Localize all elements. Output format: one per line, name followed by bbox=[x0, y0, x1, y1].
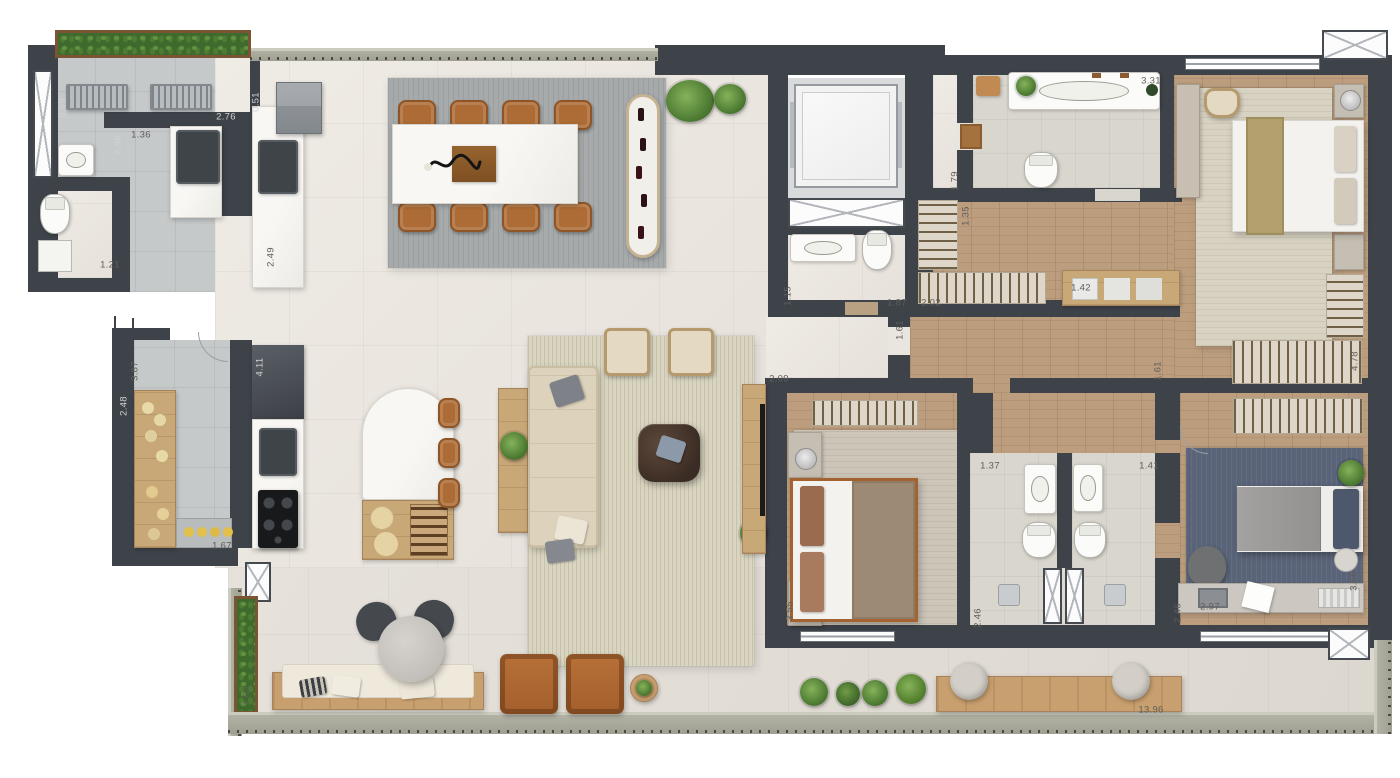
decor-squiggle bbox=[438, 146, 482, 182]
wall bbox=[112, 548, 238, 566]
wall bbox=[957, 393, 993, 453]
wall bbox=[222, 128, 252, 216]
closet-rack-icon bbox=[1232, 340, 1362, 384]
refrigerator-icon bbox=[276, 82, 322, 134]
folded-clothes-icon bbox=[1072, 278, 1098, 300]
floor-plan: 0.692.761.360.512.062.491.213.872.484.11… bbox=[0, 0, 1400, 778]
door-mat-icon bbox=[960, 124, 982, 149]
bath-accessory bbox=[1146, 84, 1158, 96]
pillow bbox=[545, 538, 576, 564]
lounge-chair-icon bbox=[500, 654, 558, 714]
entry-corridor-floor bbox=[933, 75, 957, 188]
lounge-chair-icon bbox=[566, 654, 624, 714]
plant-icon bbox=[666, 80, 714, 122]
dining-chair-icon bbox=[554, 202, 592, 232]
hallway-floor-south bbox=[973, 393, 1180, 455]
console-table-icon bbox=[498, 388, 528, 533]
table-lamp-icon bbox=[1340, 90, 1361, 111]
washer-icon bbox=[176, 130, 220, 184]
round-table-icon bbox=[378, 616, 444, 682]
plant-icon bbox=[836, 682, 860, 706]
vanity-sink-icon bbox=[790, 234, 856, 262]
terrace-railing bbox=[228, 712, 1392, 734]
pantry-jars bbox=[142, 402, 154, 414]
vanity-sink-icon bbox=[1073, 464, 1103, 512]
plant-icon bbox=[1338, 460, 1364, 486]
wall bbox=[112, 177, 130, 292]
wine-bottles bbox=[638, 108, 644, 121]
bed-blanket bbox=[852, 481, 915, 619]
cooktop-icon bbox=[258, 490, 298, 548]
laundry-sink-icon bbox=[58, 144, 94, 176]
balcony-edge bbox=[250, 48, 658, 61]
living-nook-floor bbox=[765, 317, 888, 378]
dining-chair-icon bbox=[502, 202, 540, 232]
wall bbox=[1368, 55, 1392, 645]
plant-icon bbox=[862, 680, 888, 706]
shower-icon bbox=[38, 240, 72, 272]
toilet-icon bbox=[1074, 522, 1106, 558]
vanity-sink-icon bbox=[1024, 464, 1056, 514]
closet-rack-icon bbox=[918, 272, 1046, 304]
wall bbox=[957, 73, 973, 123]
armchair-icon bbox=[604, 328, 650, 376]
pillow bbox=[800, 552, 824, 612]
door-opening bbox=[845, 302, 878, 315]
pillow bbox=[1334, 126, 1356, 172]
tall-cabinet bbox=[252, 345, 304, 419]
pantry-shelf-icon bbox=[134, 390, 176, 548]
wall bbox=[1155, 453, 1180, 523]
nightstand-icon bbox=[1334, 234, 1364, 270]
plant-icon bbox=[500, 432, 528, 460]
shaft-hatch-icon bbox=[1328, 628, 1370, 660]
toilet-icon bbox=[40, 194, 70, 234]
pillow bbox=[1334, 178, 1356, 224]
closet-rack-icon bbox=[1326, 274, 1364, 338]
plant-icon bbox=[714, 84, 746, 114]
side-table-icon bbox=[1334, 548, 1358, 572]
faucet-icon bbox=[1092, 73, 1101, 78]
door-opening bbox=[888, 327, 910, 355]
door-opening bbox=[1095, 189, 1140, 201]
plant-icon bbox=[896, 674, 926, 704]
wall bbox=[655, 45, 945, 75]
dresser bbox=[1176, 84, 1200, 198]
wall bbox=[957, 150, 973, 188]
wall bbox=[768, 75, 788, 228]
tv-icon bbox=[760, 404, 765, 516]
wall bbox=[765, 378, 973, 393]
toilet-icon bbox=[1022, 522, 1056, 558]
closet-rack-icon bbox=[918, 200, 958, 270]
wall bbox=[765, 378, 787, 648]
window-icon bbox=[33, 70, 53, 178]
planter-icon bbox=[234, 596, 258, 714]
table-runner bbox=[452, 146, 496, 182]
closet-rack-icon bbox=[812, 400, 918, 426]
armchair-icon bbox=[668, 328, 714, 376]
bar-stool-icon bbox=[370, 506, 394, 530]
table-lamp-icon bbox=[795, 448, 817, 470]
window-icon bbox=[1200, 631, 1330, 642]
stool-icon bbox=[976, 76, 1000, 96]
radiator-icon bbox=[1318, 588, 1360, 608]
wall bbox=[1057, 453, 1072, 568]
bar-stool-icon bbox=[438, 398, 460, 428]
section-cut-icon bbox=[114, 316, 126, 330]
drying-rack-icon bbox=[150, 84, 212, 110]
section-cut-icon bbox=[132, 318, 142, 330]
wall bbox=[930, 188, 1182, 202]
bed-blanket bbox=[1237, 487, 1321, 551]
elevator-rail bbox=[898, 102, 902, 168]
bar-stool-icon bbox=[438, 438, 460, 468]
wall bbox=[1160, 73, 1174, 190]
lounge-chair-icon bbox=[1188, 546, 1226, 586]
wall bbox=[1155, 380, 1180, 440]
drying-rack-icon bbox=[66, 84, 128, 110]
pillow bbox=[331, 674, 362, 698]
kitchen-sink-icon bbox=[258, 140, 298, 194]
shaft-hatch-icon bbox=[788, 198, 905, 228]
closet-rack-icon bbox=[1233, 398, 1363, 434]
terrace-railing bbox=[1374, 640, 1392, 734]
pillow bbox=[1333, 489, 1359, 549]
shower-icon bbox=[1104, 584, 1126, 606]
wall bbox=[28, 278, 130, 292]
wall bbox=[775, 300, 910, 317]
pantry-plates bbox=[184, 527, 194, 537]
planter-icon bbox=[55, 30, 251, 58]
plant-icon bbox=[636, 680, 652, 696]
plant-icon bbox=[800, 678, 828, 706]
dining-chair-icon bbox=[450, 202, 488, 232]
wine-bottles bbox=[410, 504, 448, 556]
shower-icon bbox=[998, 584, 1020, 606]
pouf-icon bbox=[1112, 662, 1150, 700]
wall bbox=[112, 328, 134, 566]
shaft-hatch-icon bbox=[1322, 30, 1388, 60]
pouf-icon bbox=[950, 662, 988, 700]
laptop-icon bbox=[1198, 588, 1228, 608]
bar-stool-icon bbox=[438, 478, 460, 508]
shaft-hatch-icon bbox=[1065, 568, 1084, 624]
shaft-hatch-icon bbox=[1043, 568, 1062, 624]
dining-chair-icon bbox=[398, 202, 436, 232]
armchair-icon bbox=[1204, 88, 1240, 118]
elevator-rail bbox=[790, 102, 794, 168]
elevator-icon bbox=[794, 84, 898, 188]
plant-icon bbox=[1016, 76, 1036, 96]
pillow bbox=[800, 486, 824, 546]
bed-throw bbox=[1246, 117, 1284, 235]
window-icon bbox=[800, 631, 895, 642]
window-icon bbox=[1185, 58, 1320, 70]
wall bbox=[957, 453, 970, 645]
wall bbox=[230, 340, 252, 548]
toilet-icon bbox=[1024, 152, 1058, 188]
toilet-icon bbox=[862, 230, 892, 270]
kitchen-sink-icon bbox=[259, 428, 297, 476]
